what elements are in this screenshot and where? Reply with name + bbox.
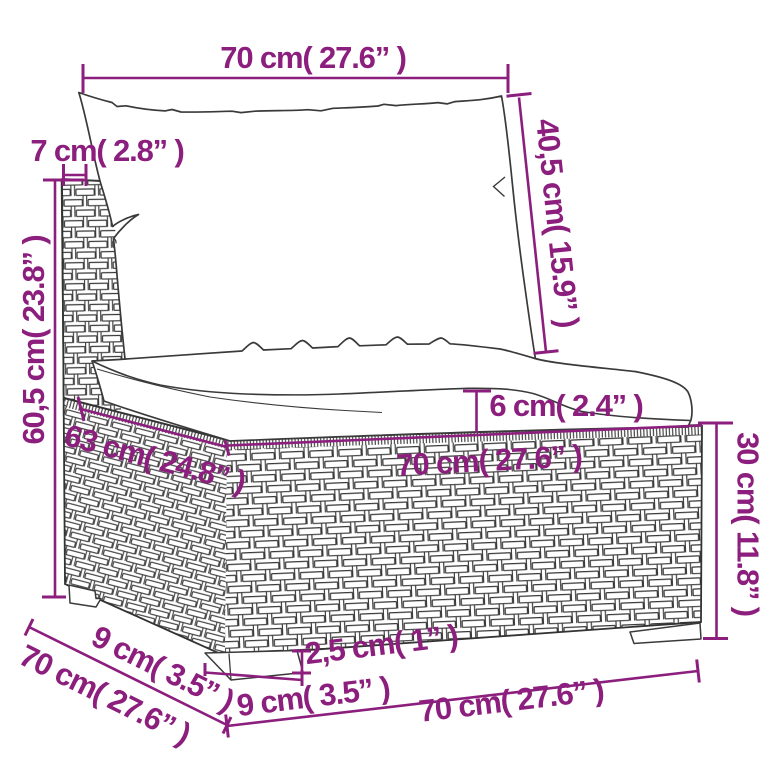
svg-text:70 cm( 27.6” ): 70 cm( 27.6” ) (220, 40, 406, 75)
svg-text:7 cm( 2.8” ): 7 cm( 2.8” ) (30, 133, 183, 168)
svg-text:6 cm( 2.4” ): 6 cm( 2.4” ) (489, 388, 642, 423)
svg-text:30 cm( 11.8” ): 30 cm( 11.8” ) (731, 432, 766, 616)
svg-text:60,5 cm( 23.8” ): 60,5 cm( 23.8” ) (16, 235, 51, 444)
